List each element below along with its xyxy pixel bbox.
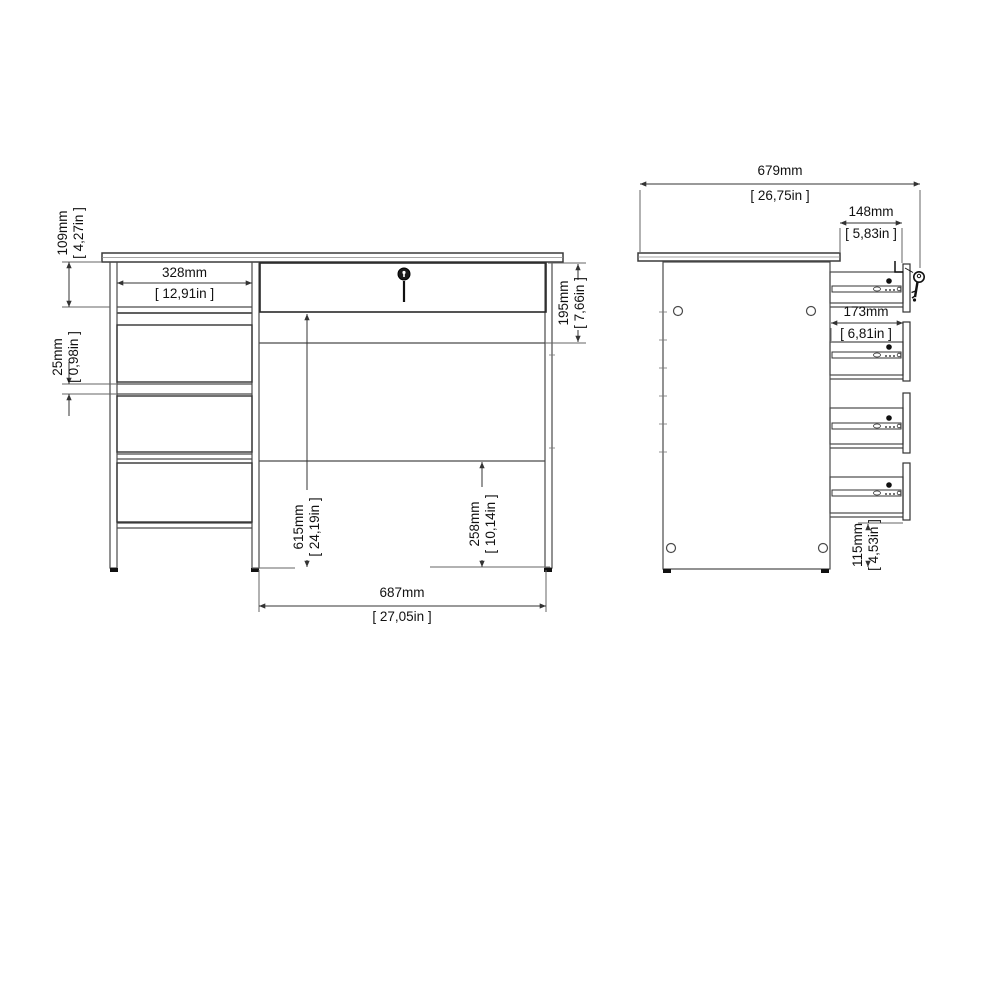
dim-top-drawer-depth-inch: [ 5,83in ] [811,226,931,242]
dim-inch-value: [ 7,66in ] [572,261,588,345]
dim-mm-value: 195mm [556,261,572,345]
dim-modesty-clearance: 258mm [ 10,14in ] [467,482,499,566]
dim-kneehole-width-mm: 687mm [280,585,524,601]
dim-total-depth-inch: [ 26,75in ] [658,188,902,204]
drawer-box-1 [830,272,903,303]
dim-top-drawer-height: 109mm [ 4,27in ] [55,191,87,275]
screw-icon [886,344,892,350]
cam-hole [667,544,676,553]
dim-drawer-depth-inch: [ 6,81in ] [806,326,926,342]
foot [821,569,829,573]
cam-hole [819,544,828,553]
foot [110,568,118,572]
drawer-slide [832,482,901,496]
drawer-front-edge-4 [903,463,910,520]
dim-total-depth-mm: 679mm [658,163,902,179]
drawer-slide [832,344,901,358]
key-icon [905,268,924,302]
screw-icon [886,415,892,421]
dim-plinth-height: 115mm [ 4,53in ] [850,503,882,587]
drawer-slide [832,415,901,429]
dim-top-drawer-depth-mm: 148mm [811,204,931,220]
dim-mm-value: 115mm [850,503,866,587]
dim-inch-value: [ 0,98in ] [66,315,82,399]
dim-apron-height: 195mm [ 7,66in ] [556,261,588,345]
foot [251,568,259,572]
dim-kneehole-width-inch: [ 27,05in ] [280,609,524,625]
foot [544,568,552,572]
pedestal-drawer-front-3 [117,463,252,522]
screw-icon [886,482,892,488]
dim-underdesk-height: 615mm [ 24,19in ] [291,485,323,569]
technical-drawing-canvas: 109mm [ 4,27in ] 25mm [ 0,98in ] 328mm [… [0,0,1000,1000]
dim-pedestal-inner-width-mm: 328mm [117,265,252,281]
dim-inch-value: [ 10,14in ] [483,482,499,566]
dim-mm-value: 109mm [55,191,71,275]
drawer-front-edge-3 [903,393,910,453]
dim-pedestal-inner-width-inch: [ 12,91in ] [117,286,252,302]
dim-drawer-depth-mm: 173mm [806,304,926,320]
pedestal-drawer-front-1 [117,325,252,382]
side-panel [663,262,830,569]
pedestal-left-stile [110,262,117,568]
dim-inch-value: [ 4,53in ] [866,503,882,587]
cam-hole [674,307,683,316]
pedestal-right-stile [252,262,259,568]
drawer-box-3 [830,408,903,444]
pedestal-drawer-front-2 [117,396,252,452]
dim-inch-value: [ 24,19in ] [307,485,323,569]
drawing-linework [0,0,1000,1000]
dim-mm-value: 25mm [50,315,66,399]
screw-icon [886,278,892,284]
dim-mm-value: 258mm [467,482,483,566]
dim-inch-value: [ 4,27in ] [71,191,87,275]
lock-icon [398,268,410,302]
dim-mm-value: 615mm [291,485,307,569]
drawer-slide [832,278,901,292]
dim-drawer-gap: 25mm [ 0,98in ] [50,315,82,399]
foot [663,569,671,573]
